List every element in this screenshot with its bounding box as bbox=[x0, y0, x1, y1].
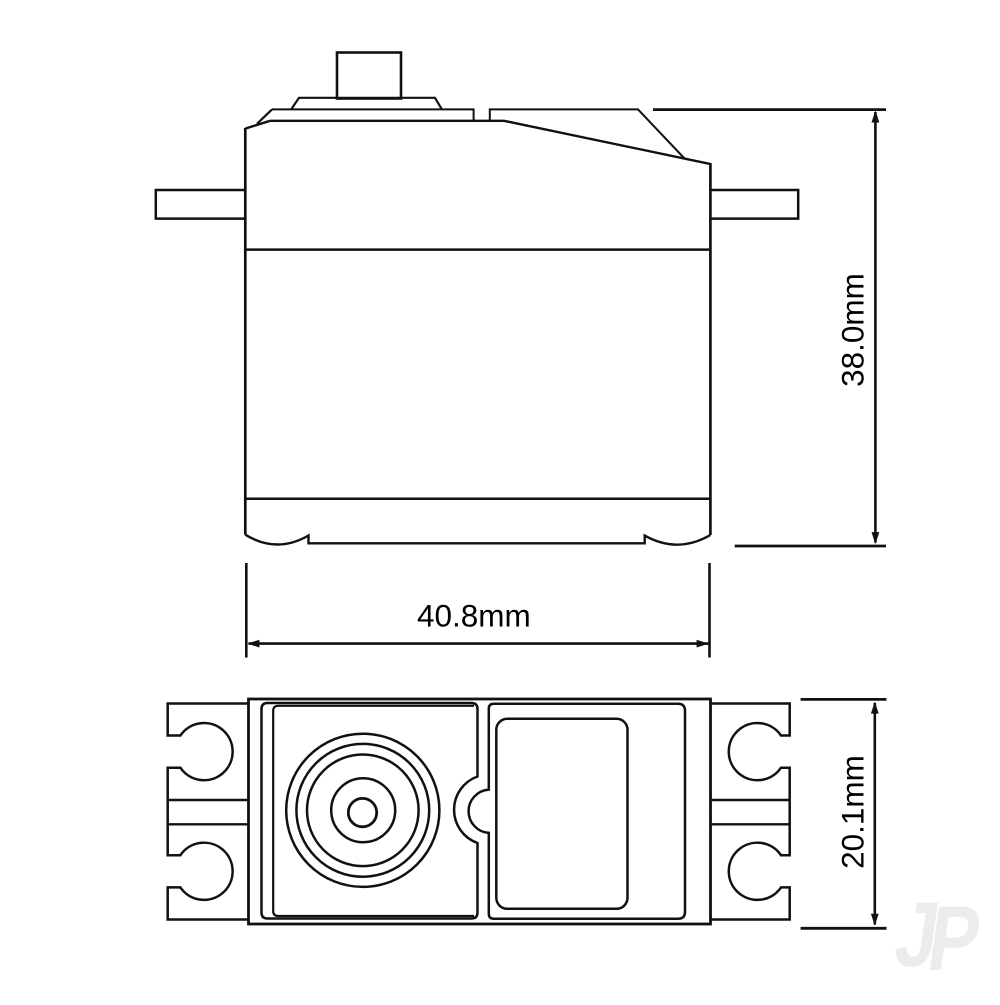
svg-text:40.8mm: 40.8mm bbox=[417, 598, 531, 634]
svg-text:38.0mm: 38.0mm bbox=[834, 273, 870, 387]
svg-text:20.1mm: 20.1mm bbox=[834, 755, 870, 869]
